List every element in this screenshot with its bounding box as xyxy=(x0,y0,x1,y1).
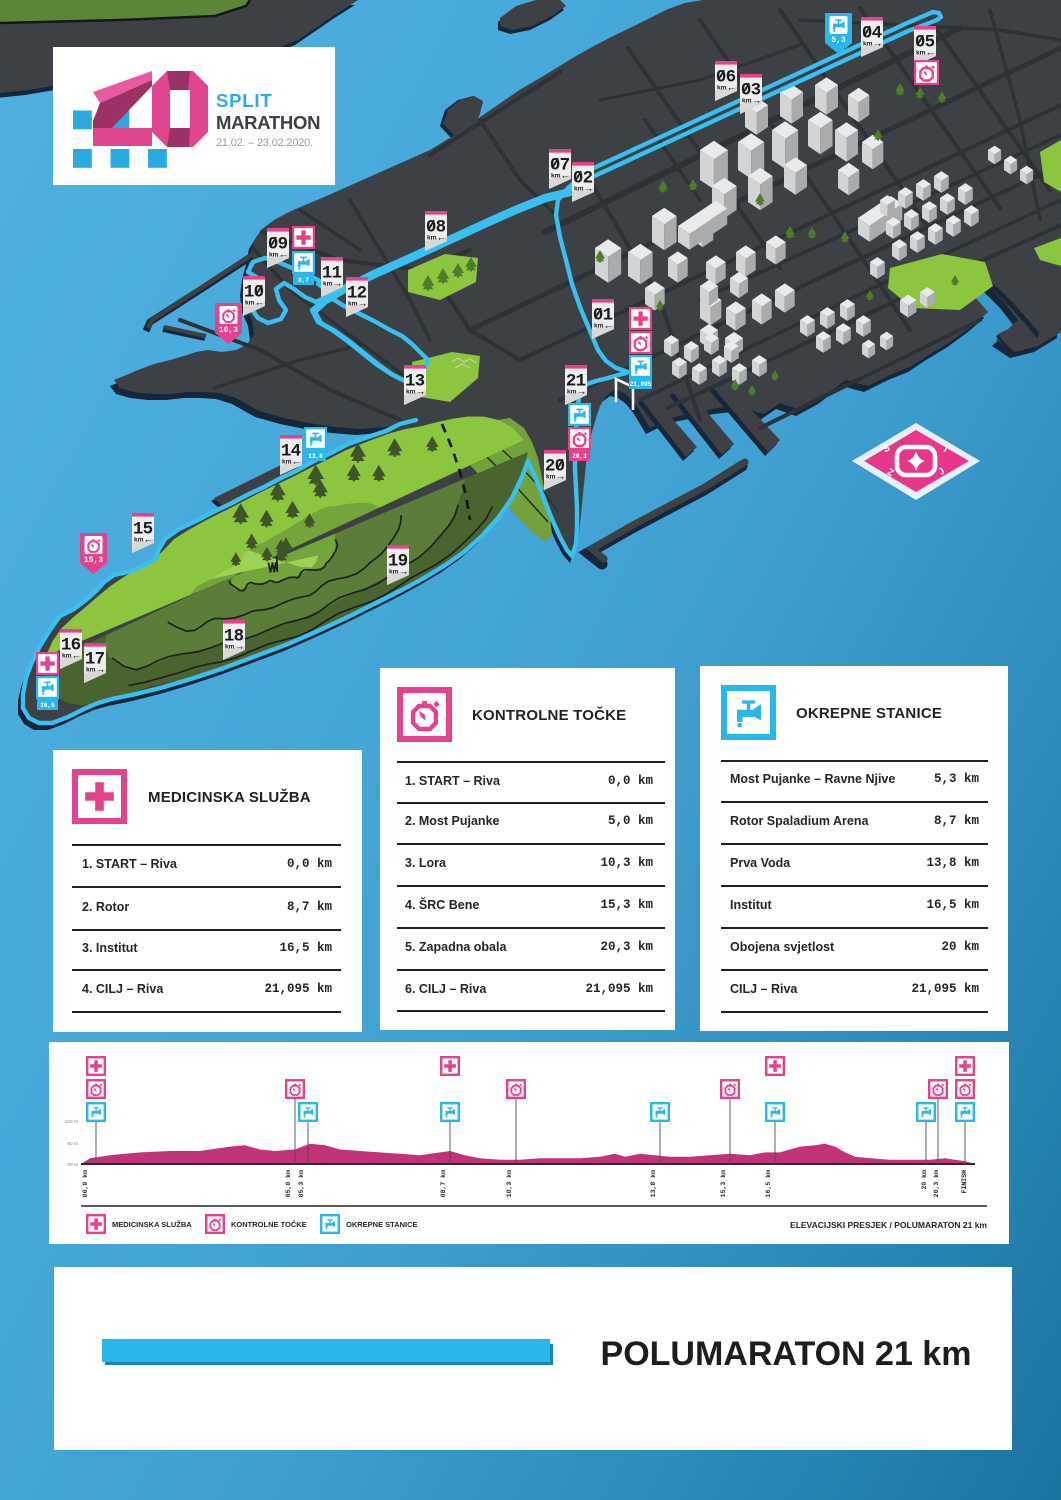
svg-text:13,8: 13,8 xyxy=(308,453,323,460)
svg-text:km: km xyxy=(245,300,255,307)
svg-text:5,3: 5,3 xyxy=(831,36,846,45)
svg-text:00 m: 00 m xyxy=(67,1162,78,1168)
svg-text:←: ← xyxy=(604,320,614,331)
svg-text:→: → xyxy=(96,664,106,675)
svg-text:OKREPNE STANICE: OKREPNE STANICE xyxy=(346,1220,418,1229)
svg-text:km: km xyxy=(863,41,873,48)
svg-text:8,7: 8,7 xyxy=(298,277,309,284)
svg-text:→: → xyxy=(752,95,762,106)
svg-text:km: km xyxy=(427,235,437,242)
svg-text:km: km xyxy=(546,474,556,481)
svg-text:50 m: 50 m xyxy=(67,1141,78,1147)
svg-text:13,8 km: 13,8 km xyxy=(650,1170,657,1197)
svg-text:MARATHON: MARATHON xyxy=(216,112,320,133)
svg-text:←: ← xyxy=(561,170,571,181)
svg-text:→: → xyxy=(416,386,426,397)
svg-text:→: → xyxy=(577,386,587,397)
svg-text:km: km xyxy=(717,85,727,92)
svg-text:km: km xyxy=(406,389,416,396)
svg-text:05,3 km: 05,3 km xyxy=(298,1170,305,1197)
svg-text:→: → xyxy=(333,278,343,289)
svg-text:100 m: 100 m xyxy=(65,1119,78,1125)
svg-text:km: km xyxy=(269,252,279,259)
svg-text:km: km xyxy=(62,653,72,660)
svg-text:ELEVACIJSKI PRESJEK / POLUMARA: ELEVACIJSKI PRESJEK / POLUMARATON 21 km xyxy=(790,1220,987,1230)
svg-text:←: ← xyxy=(144,534,154,545)
svg-text:20,3: 20,3 xyxy=(572,453,587,460)
svg-text:→: → xyxy=(235,641,245,652)
svg-text:km: km xyxy=(389,569,399,576)
svg-text:00,0 km: 00,0 km xyxy=(82,1170,89,1197)
svg-text:→: → xyxy=(399,566,409,577)
svg-text:←: ← xyxy=(727,82,737,93)
svg-text:KONTROLNE TOČKE: KONTROLNE TOČKE xyxy=(231,1220,307,1229)
svg-text:km: km xyxy=(323,281,333,288)
svg-text:km: km xyxy=(594,323,604,330)
svg-text:km: km xyxy=(567,389,577,396)
svg-text:20,3 km: 20,3 km xyxy=(933,1170,940,1197)
svg-text:←: ← xyxy=(72,650,82,661)
svg-text:FINISH: FINISH xyxy=(961,1170,968,1194)
svg-text:→: → xyxy=(556,471,566,482)
svg-text:→: → xyxy=(584,183,594,194)
svg-text:km: km xyxy=(225,644,235,651)
svg-text:←: ← xyxy=(255,297,265,308)
svg-text:20 km: 20 km xyxy=(921,1170,928,1190)
svg-text:MEDICINSKA SLUŽBA: MEDICINSKA SLUŽBA xyxy=(112,1220,192,1229)
svg-text:km: km xyxy=(134,537,144,544)
svg-text:15,3 km: 15,3 km xyxy=(720,1170,727,1197)
svg-text:10,3 km: 10,3 km xyxy=(506,1170,513,1197)
svg-text:→: → xyxy=(358,298,368,309)
svg-text:21.02. – 23.02.2020.: 21.02. – 23.02.2020. xyxy=(216,137,313,149)
svg-text:km: km xyxy=(551,173,561,180)
svg-text:16,5 km: 16,5 km xyxy=(765,1170,772,1197)
svg-text:←: ← xyxy=(437,232,447,243)
svg-text:km: km xyxy=(348,301,358,308)
svg-text:08,7 km: 08,7 km xyxy=(440,1170,447,1197)
svg-text:←: ← xyxy=(279,249,289,260)
svg-text:10,3: 10,3 xyxy=(219,326,238,335)
svg-text:05,0 km: 05,0 km xyxy=(285,1170,292,1197)
svg-text:←: ← xyxy=(292,456,302,467)
svg-text:16,5: 16,5 xyxy=(40,702,55,709)
svg-text:→: → xyxy=(873,38,883,49)
svg-text:15,3: 15,3 xyxy=(84,556,103,565)
svg-text:21,095: 21,095 xyxy=(630,381,652,388)
svg-text:←: ← xyxy=(926,47,936,58)
svg-text:km: km xyxy=(574,186,584,193)
svg-text:km: km xyxy=(742,98,752,105)
svg-text:SPLIT: SPLIT xyxy=(216,90,272,111)
svg-text:km: km xyxy=(86,667,96,674)
svg-text:km: km xyxy=(282,459,292,466)
svg-text:km: km xyxy=(916,50,926,57)
